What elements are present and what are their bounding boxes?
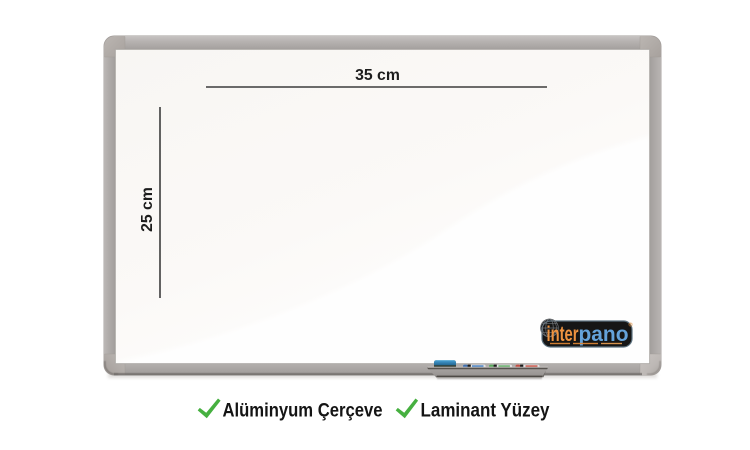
svg-text:35 cm: 35 cm <box>355 67 400 84</box>
svg-text:Laminant Yüzey: Laminant Yüzey <box>421 400 550 421</box>
svg-text:®: ® <box>629 322 633 329</box>
svg-text:pano: pano <box>579 323 629 346</box>
svg-text:25 cm: 25 cm <box>139 187 156 232</box>
svg-text:inter: inter <box>547 323 579 346</box>
svg-text:Alüminyum Çerçeve: Alüminyum Çerçeve <box>223 400 383 421</box>
